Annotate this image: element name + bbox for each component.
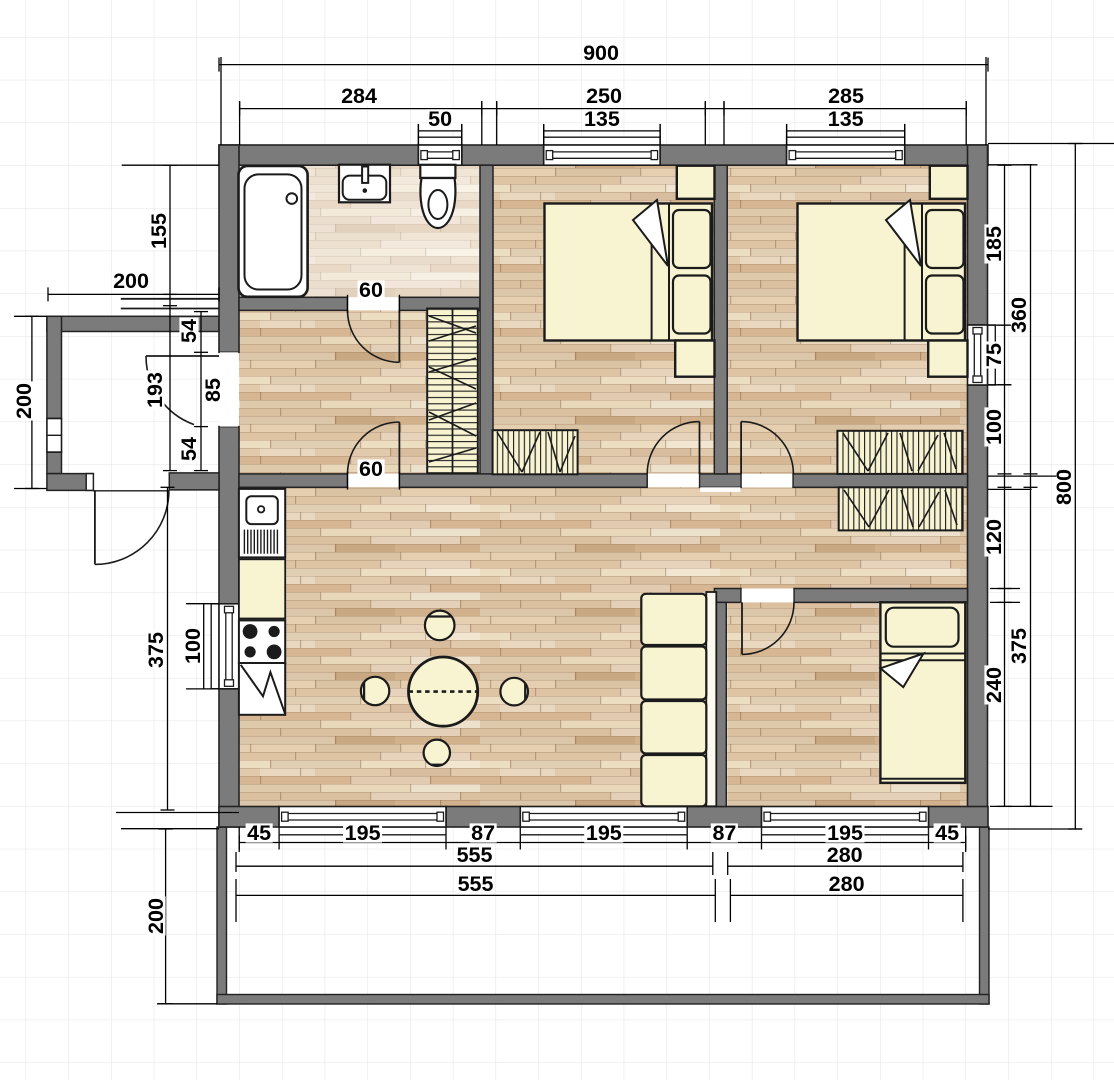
svg-text:185: 185 <box>982 226 1006 262</box>
svg-text:555: 555 <box>457 843 493 867</box>
svg-text:800: 800 <box>1052 469 1076 505</box>
svg-text:45: 45 <box>935 821 959 845</box>
svg-text:45: 45 <box>247 821 271 845</box>
svg-text:280: 280 <box>827 843 863 867</box>
svg-text:100: 100 <box>181 628 205 664</box>
svg-text:285: 285 <box>828 84 864 108</box>
svg-text:200: 200 <box>144 898 168 934</box>
svg-text:60: 60 <box>359 457 383 481</box>
svg-text:555: 555 <box>458 872 494 896</box>
svg-text:195: 195 <box>345 821 381 845</box>
svg-text:200: 200 <box>113 269 149 293</box>
svg-text:195: 195 <box>586 821 622 845</box>
svg-text:54: 54 <box>177 319 201 343</box>
svg-text:250: 250 <box>586 84 622 108</box>
svg-text:375: 375 <box>1007 628 1031 664</box>
svg-text:360: 360 <box>1007 297 1031 333</box>
svg-text:240: 240 <box>982 667 1006 703</box>
svg-text:135: 135 <box>828 107 864 131</box>
svg-text:375: 375 <box>144 632 168 668</box>
svg-text:87: 87 <box>712 821 736 845</box>
svg-text:193: 193 <box>143 372 167 408</box>
svg-text:280: 280 <box>829 872 865 896</box>
svg-text:54: 54 <box>177 437 201 461</box>
svg-text:85: 85 <box>201 378 225 402</box>
svg-text:200: 200 <box>12 383 36 419</box>
svg-text:284: 284 <box>341 84 377 108</box>
svg-text:155: 155 <box>147 213 171 249</box>
svg-text:75: 75 <box>982 343 1006 367</box>
svg-text:87: 87 <box>471 821 495 845</box>
svg-text:195: 195 <box>827 821 863 845</box>
svg-text:135: 135 <box>584 107 620 131</box>
svg-text:60: 60 <box>359 278 383 302</box>
svg-text:100: 100 <box>982 409 1006 445</box>
svg-text:120: 120 <box>982 519 1006 555</box>
svg-text:50: 50 <box>428 107 452 131</box>
svg-text:900: 900 <box>583 41 619 65</box>
